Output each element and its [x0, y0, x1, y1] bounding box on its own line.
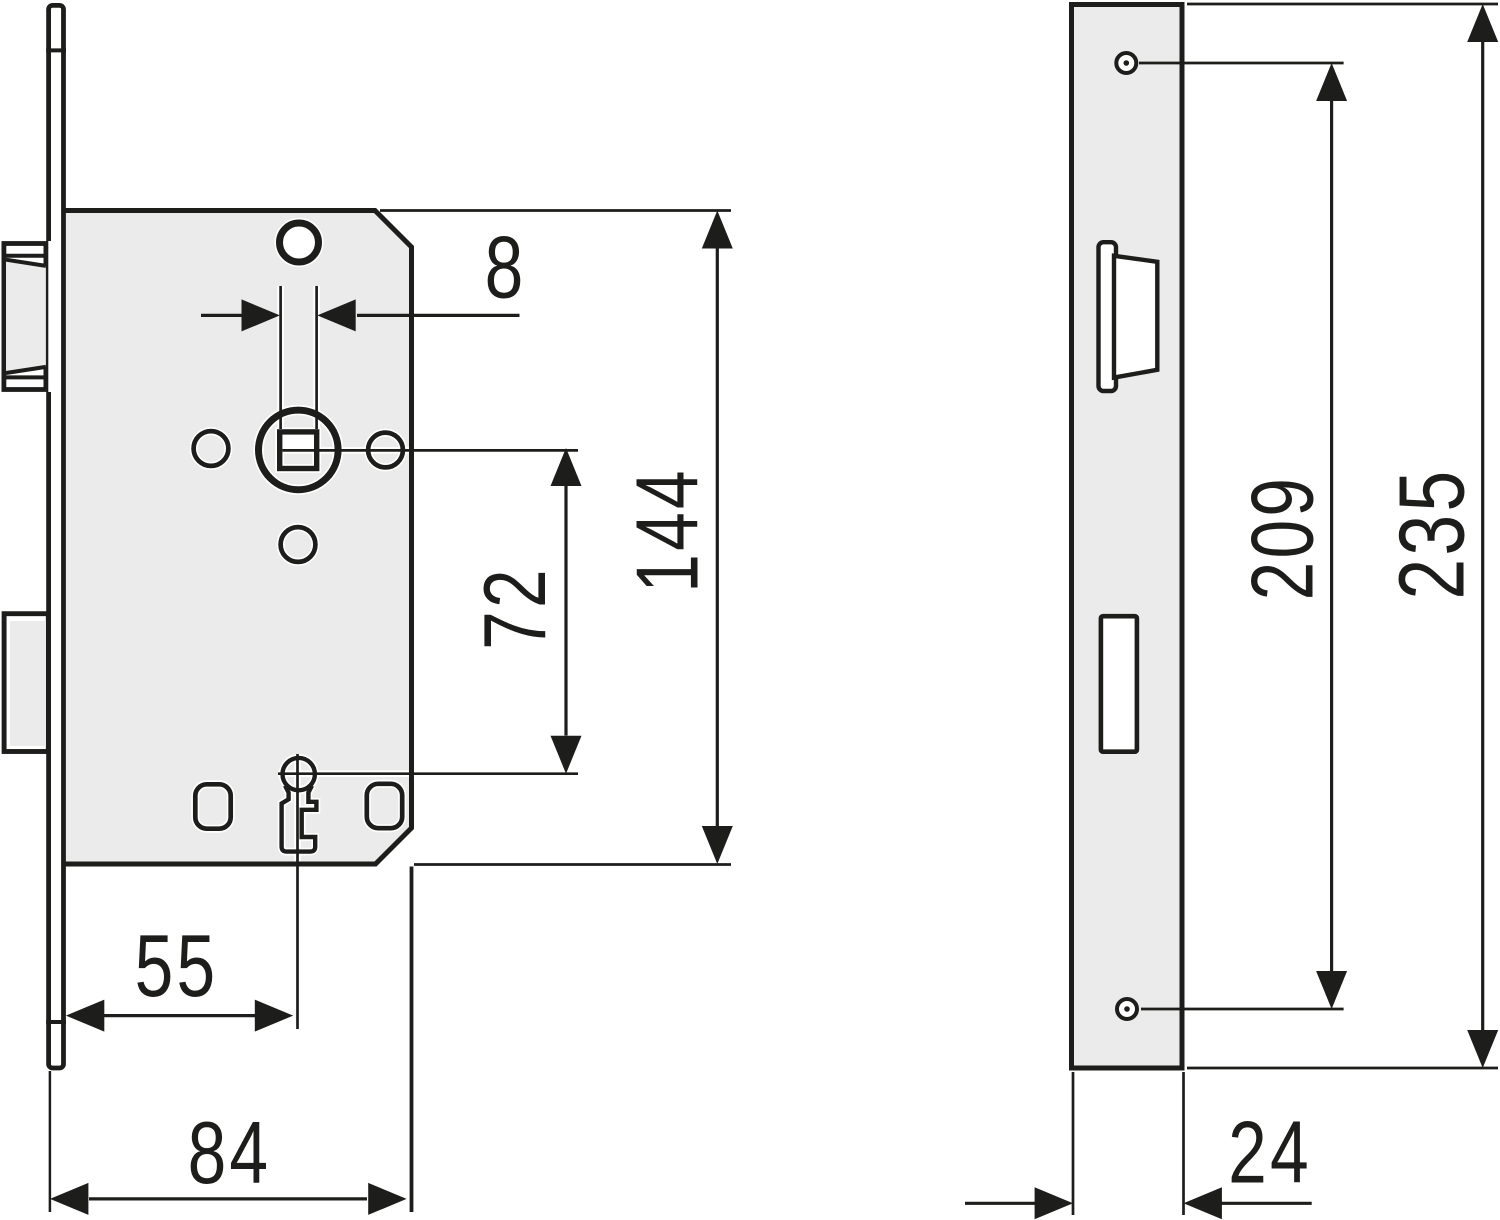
svg-text:209: 209: [1233, 475, 1332, 600]
svg-text:72: 72: [465, 566, 564, 650]
svg-text:84: 84: [188, 1103, 272, 1202]
svg-text:55: 55: [135, 916, 219, 1015]
svg-text:8: 8: [485, 218, 524, 317]
svg-text:24: 24: [1228, 1103, 1312, 1202]
svg-text:144: 144: [618, 467, 717, 592]
svg-text:235: 235: [1379, 468, 1483, 600]
